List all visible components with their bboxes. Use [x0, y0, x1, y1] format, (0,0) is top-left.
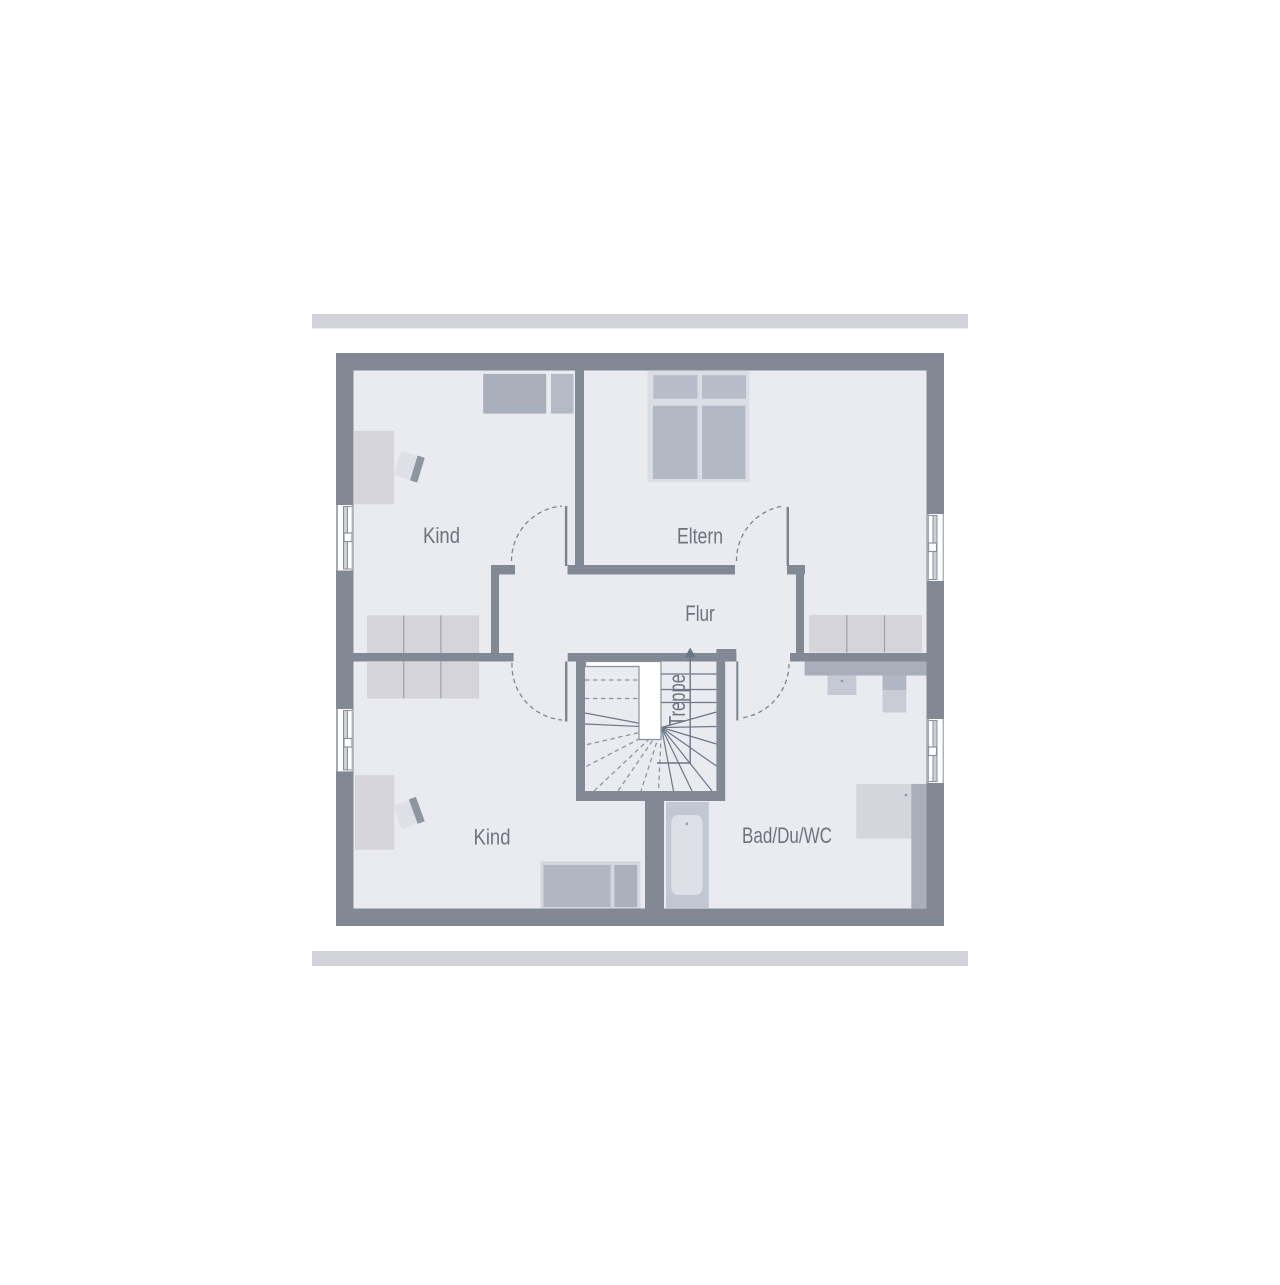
- svg-text:Treppe: Treppe: [664, 674, 690, 726]
- svg-text:Bad/Du/WC: Bad/Du/WC: [742, 823, 832, 848]
- svg-text:Flur: Flur: [685, 601, 715, 626]
- svg-text:Kind: Kind: [423, 523, 460, 548]
- svg-text:Kind: Kind: [474, 825, 511, 850]
- svg-text:Eltern: Eltern: [677, 524, 723, 549]
